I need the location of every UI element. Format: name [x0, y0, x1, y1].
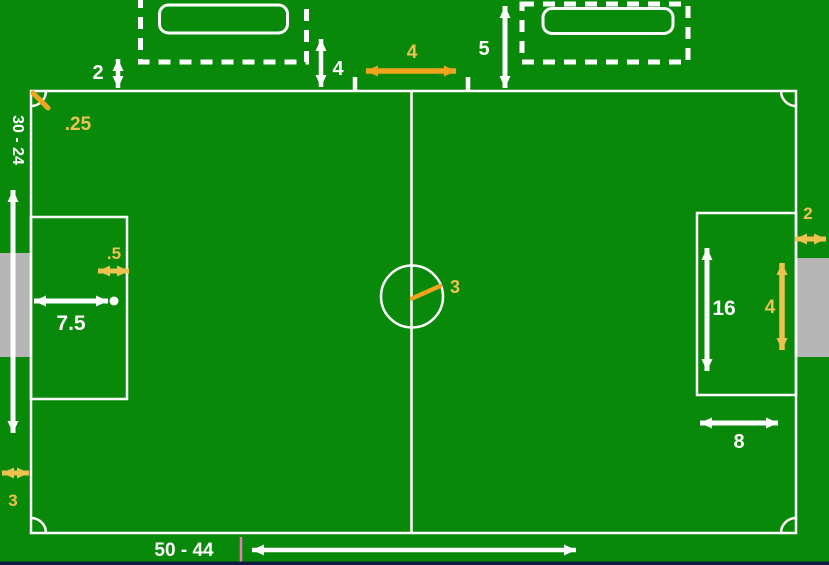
dim-label-corner-arc-radius: .25 — [65, 114, 92, 135]
dim-label-field-width-range: 30 - 24 — [9, 115, 26, 165]
field-boundary — [31, 91, 796, 533]
dim-label-right-goal-depth: 2 — [803, 204, 812, 223]
bench-left — [160, 5, 288, 33]
dim-label-right-goal-width: 4 — [765, 297, 776, 318]
dim-label-left-bench-offset: 4 — [332, 58, 344, 80]
bench-right — [543, 9, 673, 34]
goal-right — [797, 258, 829, 357]
dim-label-center-gap: 4 — [407, 42, 418, 63]
penalty-spot-left — [110, 297, 119, 306]
corner-arc-top-right — [781, 91, 796, 106]
center-circle-radius-line — [412, 286, 440, 299]
dim-label-spot-edge-offset: .5 — [107, 244, 121, 263]
dim-label-bench-gap: 2 — [92, 62, 103, 84]
bottom-edge-strip — [0, 562, 829, 565]
dim-label-center-circle-radius: 3 — [450, 277, 460, 297]
corner-arc-bottom-left — [31, 518, 46, 533]
corner-arc-bottom-right — [781, 518, 796, 533]
dim-label-penalty-area-depth: 8 — [733, 431, 744, 453]
dim-label-penalty-area-length: 16 — [712, 297, 735, 320]
dim-label-left-goal-depth: 3 — [8, 491, 17, 510]
dim-label-right-bench-offset: 5 — [478, 38, 489, 60]
dim-label-field-length-range: 50 - 44 — [154, 540, 214, 561]
field-diagram-canvas: 2 4 4 5 30 - 24 .25 .5 7.5 3 3 16 4 2 8 … — [0, 0, 829, 565]
dim-label-penalty-spot-distance: 7.5 — [56, 312, 86, 335]
field-diagram: 2 4 4 5 30 - 24 .25 .5 7.5 3 3 16 4 2 8 … — [0, 0, 829, 565]
